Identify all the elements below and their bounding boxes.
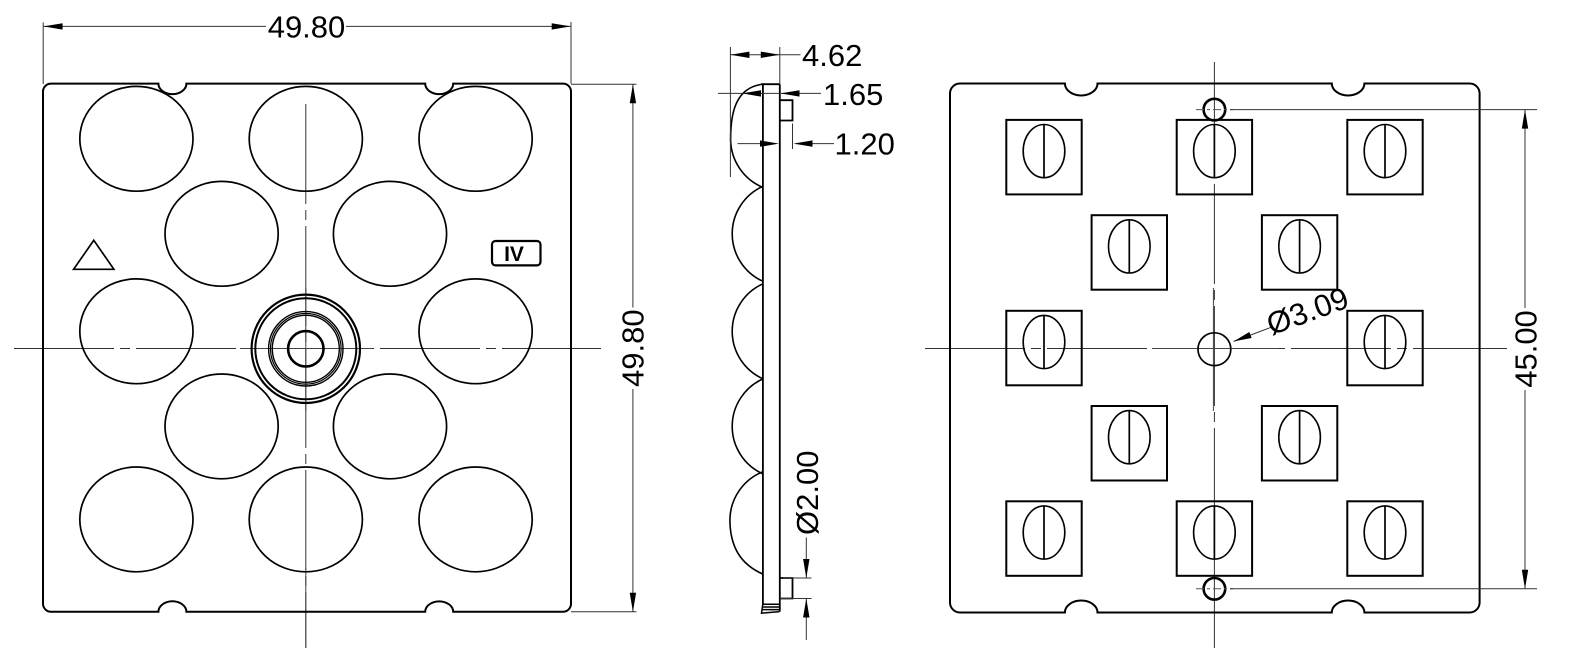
svg-text:Ø2.00: Ø2.00: [790, 451, 825, 535]
svg-text:1.65: 1.65: [823, 77, 883, 112]
svg-text:1.20: 1.20: [835, 127, 895, 162]
svg-text:49.80: 49.80: [268, 10, 346, 45]
svg-text:49.80: 49.80: [616, 309, 651, 387]
svg-text:45.00: 45.00: [1509, 310, 1544, 388]
svg-text:4.62: 4.62: [802, 38, 862, 73]
svg-text:IV: IV: [504, 243, 524, 266]
